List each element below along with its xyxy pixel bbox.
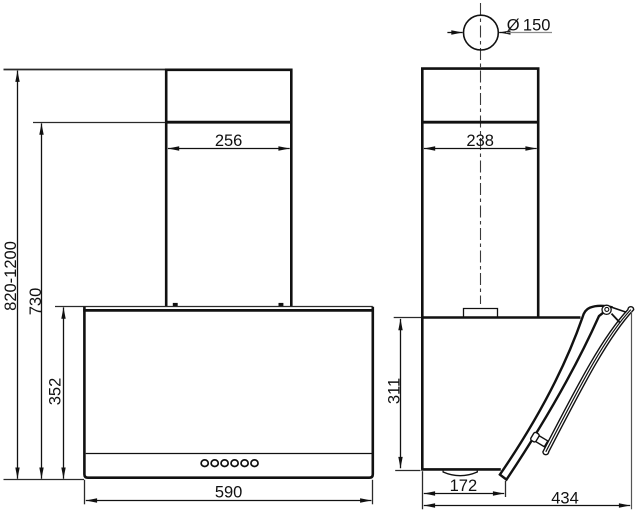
svg-text:Ø 150: Ø 150: [507, 16, 551, 34]
svg-text:172: 172: [450, 477, 478, 495]
svg-text:434: 434: [551, 489, 579, 507]
svg-text:730: 730: [27, 288, 45, 316]
svg-text:256: 256: [215, 132, 243, 150]
svg-text:311: 311: [386, 378, 404, 404]
svg-text:238: 238: [466, 132, 494, 150]
svg-text:590: 590: [215, 483, 243, 501]
svg-text:352: 352: [47, 378, 65, 406]
svg-text:820-1200: 820-1200: [2, 241, 20, 311]
